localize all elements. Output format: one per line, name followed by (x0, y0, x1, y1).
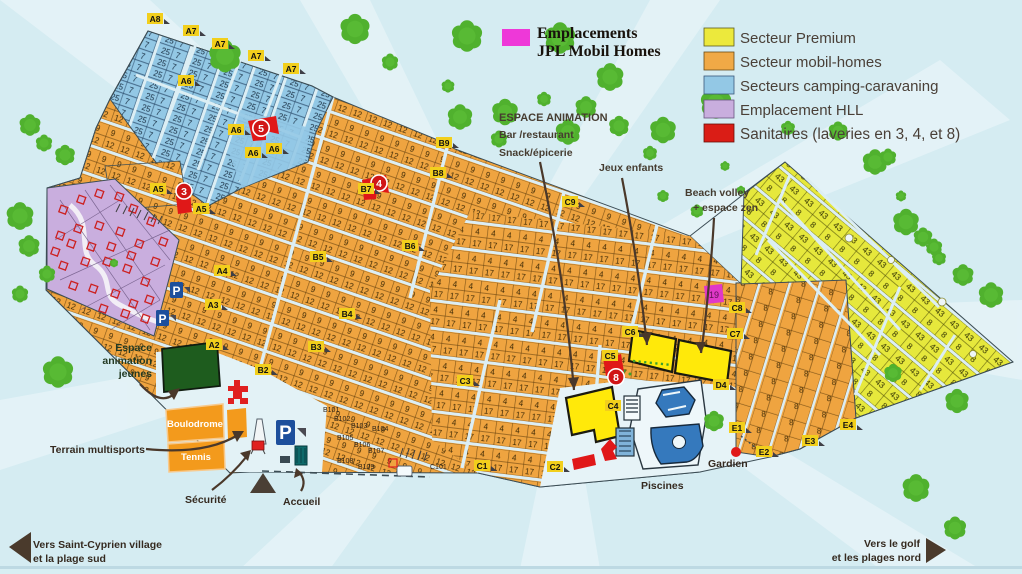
svg-text:C9: C9 (565, 197, 576, 207)
svg-text:Beach volley: Beach volley (685, 187, 749, 199)
svg-text:animation: animation (102, 355, 152, 367)
svg-text:B104: B104 (372, 426, 388, 433)
svg-text:B4: B4 (342, 309, 353, 319)
svg-text:Secteur Premium: Secteur Premium (740, 30, 856, 47)
svg-text:et les plages nord: et les plages nord (832, 552, 921, 564)
svg-text:B108: B108 (337, 458, 353, 465)
svg-text:Piscines: Piscines (641, 480, 684, 492)
svg-text:et la plage sud: et la plage sud (33, 553, 106, 565)
svg-text:Accueil: Accueil (283, 496, 320, 508)
svg-text:B6: B6 (405, 241, 416, 251)
svg-text:8: 8 (613, 372, 619, 384)
svg-text:Tennis: Tennis (181, 452, 211, 463)
svg-text:B109: B109 (358, 464, 374, 471)
svg-text:B103: B103 (351, 423, 367, 430)
svg-text:Secteur mobil-homes: Secteur mobil-homes (740, 54, 882, 71)
svg-text:A3: A3 (208, 300, 219, 310)
svg-text:Vers Saint-Cyprien village: Vers Saint-Cyprien village (33, 539, 162, 551)
svg-text:JPL Mobil Homes: JPL Mobil Homes (537, 43, 661, 60)
svg-text:B102: B102 (334, 416, 350, 423)
svg-text:B107: B107 (368, 448, 384, 455)
svg-text:Espace: Espace (115, 342, 152, 354)
svg-text:E1: E1 (732, 423, 743, 433)
svg-text:A7: A7 (186, 26, 197, 36)
svg-text:D4: D4 (716, 380, 727, 390)
svg-text:Emplacements: Emplacements (537, 25, 637, 42)
svg-text:C101: C101 (430, 464, 447, 471)
svg-text:A6: A6 (231, 125, 242, 135)
svg-text:C5: C5 (605, 351, 616, 361)
svg-text:E3: E3 (805, 436, 816, 446)
svg-text:Terrain multisports: Terrain multisports (50, 444, 145, 456)
svg-text:C8: C8 (732, 303, 743, 313)
svg-text:C2: C2 (550, 462, 561, 472)
svg-text:B105: B105 (337, 435, 353, 442)
svg-text:3: 3 (181, 186, 187, 198)
svg-text:A7: A7 (215, 39, 226, 49)
svg-text:A7: A7 (251, 51, 262, 61)
svg-text:Secteurs camping-caravaning: Secteurs camping-caravaning (740, 78, 938, 95)
svg-text:C1: C1 (477, 461, 488, 471)
svg-text:5: 5 (258, 123, 264, 135)
svg-text:E4: E4 (843, 420, 854, 430)
svg-text:A2: A2 (209, 340, 220, 350)
svg-text:A8: A8 (150, 14, 161, 24)
svg-text:P: P (158, 312, 166, 326)
svg-text:C3: C3 (460, 376, 471, 386)
svg-text:B101: B101 (323, 407, 339, 414)
svg-text:Sanitaires (laveries en 3, 4,: Sanitaires (laveries en 3, 4, et 8) (740, 126, 960, 143)
svg-text:19: 19 (709, 290, 719, 300)
svg-text:E2: E2 (759, 447, 770, 457)
svg-text:Jeux enfants: Jeux enfants (599, 162, 663, 174)
svg-text:B9: B9 (439, 138, 450, 148)
svg-text:jeunes: jeunes (118, 368, 152, 380)
svg-text:A6: A6 (248, 148, 259, 158)
svg-text:A7: A7 (286, 64, 297, 74)
svg-text:P: P (172, 284, 180, 298)
svg-text:+ espace zen: + espace zen (693, 202, 758, 214)
svg-text:Boulodrome: Boulodrome (167, 419, 223, 430)
svg-text:Vers le golf: Vers le golf (864, 538, 921, 550)
svg-text:4: 4 (376, 178, 382, 190)
svg-text:P: P (279, 423, 292, 444)
svg-text:A5: A5 (153, 184, 164, 194)
svg-text:B8: B8 (433, 168, 444, 178)
svg-text:B5: B5 (313, 252, 324, 262)
svg-text:B2: B2 (258, 365, 269, 375)
svg-text:C4: C4 (608, 401, 619, 411)
svg-text:C7: C7 (730, 329, 741, 339)
svg-text:Sécurité: Sécurité (185, 494, 227, 506)
svg-text:Snack/épicerie: Snack/épicerie (499, 147, 573, 159)
svg-text:B7: B7 (361, 184, 372, 194)
svg-text:Bar /restaurant: Bar /restaurant (499, 129, 574, 141)
svg-text:A6: A6 (181, 76, 192, 86)
svg-text:C6: C6 (625, 327, 636, 337)
svg-text:ESPACE ANIMATION: ESPACE ANIMATION (499, 112, 608, 124)
svg-text:A5: A5 (196, 204, 207, 214)
svg-text:Gardien: Gardien (708, 458, 748, 470)
svg-text:B3: B3 (311, 342, 322, 352)
svg-text:A4: A4 (217, 266, 228, 276)
svg-text:Emplacement HLL: Emplacement HLL (740, 102, 863, 119)
svg-text:A6: A6 (269, 144, 280, 154)
